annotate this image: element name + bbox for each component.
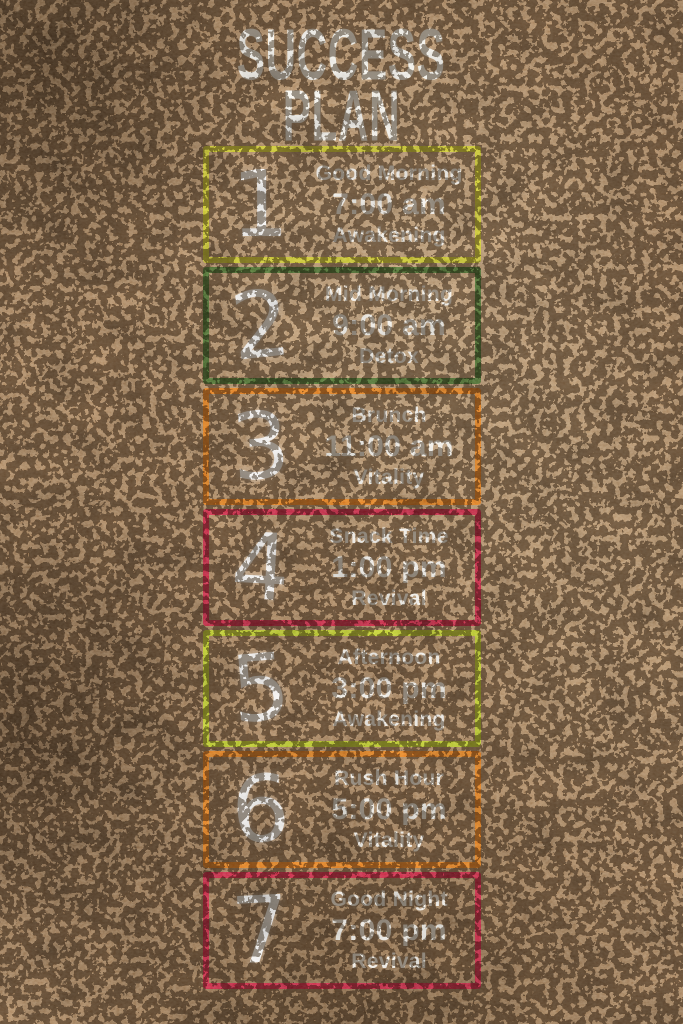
step-time: 7:00 pm [331, 914, 446, 948]
step-number: 5 [205, 638, 316, 739]
step-info: Brunch 11:00 am Vitality [312, 404, 475, 490]
step-info: Rush Hour 5:00 pm Vitality [312, 767, 475, 853]
step-number: 7 [206, 882, 314, 979]
step-time: 7:00 am [332, 188, 446, 222]
step-time: 11:00 am [325, 430, 454, 464]
step-time: 3:00 pm [331, 672, 446, 706]
success-plan-poster: SUCCESS PLAN 1 Good Morning 7:00 am Awak… [0, 0, 683, 1024]
title-line-2: PLAN [123, 79, 560, 152]
step-label: Brunch [351, 404, 426, 428]
step-category: Vitality [354, 466, 425, 490]
plan-step-2: 2 Mid Morning 9:00 am Detox [203, 267, 481, 384]
step-info: Good Night 7:00 pm Revival [312, 888, 475, 974]
plan-step-6: 6 Rush Hour 5:00 pm Vitality [203, 751, 481, 868]
step-time: 1:00 pm [331, 551, 446, 585]
step-category: Detox [359, 345, 419, 369]
step-category: Awakening [333, 224, 446, 248]
step-info: Mid Morning 9:00 am Detox [312, 283, 475, 369]
step-label: Mid Morning [325, 283, 453, 307]
plan-step-7: 7 Good Night 7:00 pm Revival [203, 872, 481, 989]
step-label: Good Morning [316, 162, 463, 186]
step-number: 4 [206, 519, 314, 616]
step-category: Revival [351, 950, 427, 974]
step-info: Afternoon 3:00 pm Awakening [312, 646, 475, 732]
step-time: 5:00 pm [331, 793, 446, 827]
step-time: 9:00 am [332, 309, 446, 343]
step-number: 6 [207, 762, 313, 858]
plan-step-4: 4 Snack Time 1:00 pm Revival [203, 509, 481, 626]
plan-step-1: 1 Good Morning 7:00 am Awakening [203, 146, 481, 263]
step-number: 2 [204, 274, 316, 376]
step-label: Rush Hour [334, 767, 444, 791]
step-category: Revival [351, 587, 427, 611]
step-label: Good Night [330, 888, 447, 912]
plan-steps-list: 1 Good Morning 7:00 am Awakening 2 Mid M… [203, 146, 481, 989]
step-label: Afternoon [338, 646, 441, 670]
step-number: 3 [205, 397, 314, 496]
plan-step-5: 5 Afternoon 3:00 pm Awakening [203, 630, 481, 747]
step-label: Snack Time [329, 525, 448, 549]
step-info: Snack Time 1:00 pm Revival [312, 525, 475, 611]
step-category: Vitality [354, 829, 425, 853]
plan-step-3: 3 Brunch 11:00 am Vitality [203, 388, 481, 505]
poster-title: SUCCESS PLAN [0, 18, 683, 145]
step-number: 1 [209, 159, 312, 251]
step-category: Awakening [333, 708, 446, 732]
step-info: Good Morning 7:00 am Awakening [312, 162, 475, 248]
